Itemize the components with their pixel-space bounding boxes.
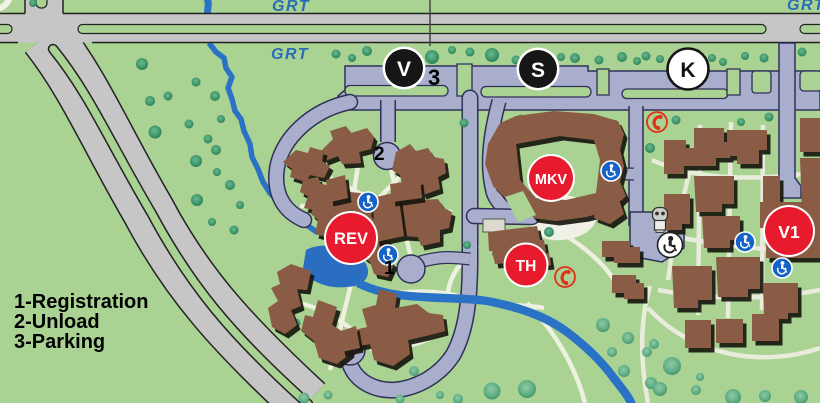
svg-text:3: 3	[428, 65, 440, 90]
svg-text:MKV: MKV	[535, 172, 568, 188]
svg-text:GRT: GRT	[787, 0, 820, 14]
svg-text:3-Parking: 3-Parking	[14, 331, 105, 353]
svg-text:GRT: GRT	[272, 0, 310, 15]
svg-text:TH: TH	[516, 258, 537, 275]
svg-text:V: V	[397, 58, 411, 81]
svg-text:1-Registration: 1-Registration	[14, 291, 148, 313]
svg-text:2-Unload: 2-Unload	[14, 311, 100, 333]
svg-text:REV: REV	[334, 230, 368, 248]
svg-text:S: S	[531, 59, 545, 82]
svg-text:K: K	[680, 59, 695, 82]
svg-text:1: 1	[384, 258, 395, 279]
svg-text:GRT: GRT	[271, 46, 309, 63]
svg-text:2: 2	[374, 144, 385, 165]
svg-text:V1: V1	[778, 222, 800, 242]
